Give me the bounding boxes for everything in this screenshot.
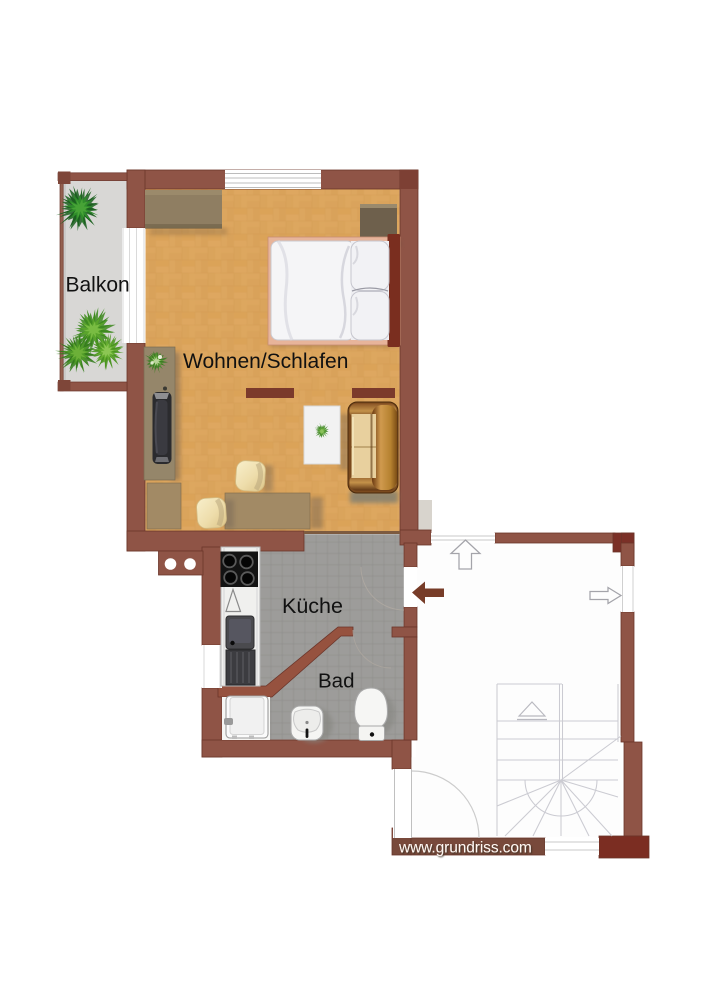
svg-text:www.grundriss.com: www.grundriss.com bbox=[398, 840, 532, 857]
svg-text:Küche: Küche bbox=[282, 594, 343, 618]
svg-text:Bad: Bad bbox=[318, 670, 354, 693]
svg-text:Wohnen/Schlafen: Wohnen/Schlafen bbox=[183, 350, 348, 373]
svg-text:Balkon: Balkon bbox=[66, 274, 130, 297]
